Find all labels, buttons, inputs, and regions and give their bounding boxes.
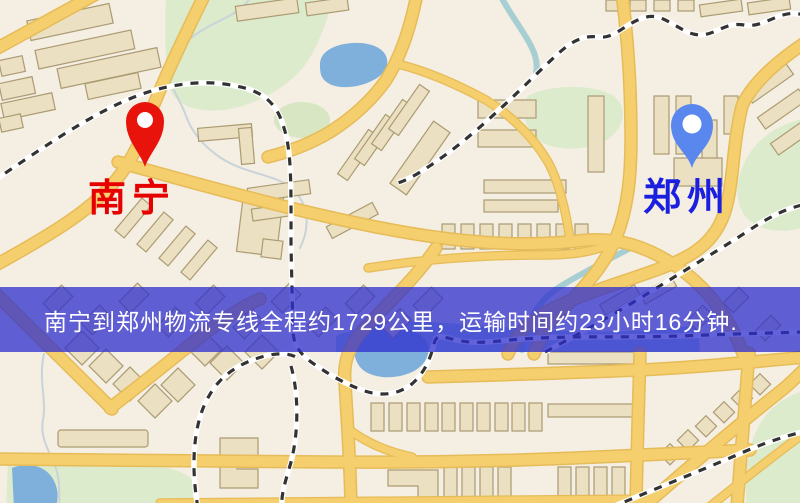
lake <box>320 43 387 87</box>
map-canvas <box>0 0 800 503</box>
route-info-text: 南宁到郑州物流专线全程约1729公里，运输时间约23小时16分钟. <box>44 303 738 337</box>
origin-city-label: 南宁 <box>88 180 176 218</box>
buildings-layer <box>0 0 800 501</box>
destination-city-label: 郑州 <box>643 179 731 217</box>
map-container: 南宁 郑州 南宁到郑州物流专线全程约1729公里，运输时间约23小时16分钟. <box>0 0 800 503</box>
route-info-banner: 南宁到郑州物流专线全程约1729公里，运输时间约23小时16分钟. <box>0 287 800 352</box>
